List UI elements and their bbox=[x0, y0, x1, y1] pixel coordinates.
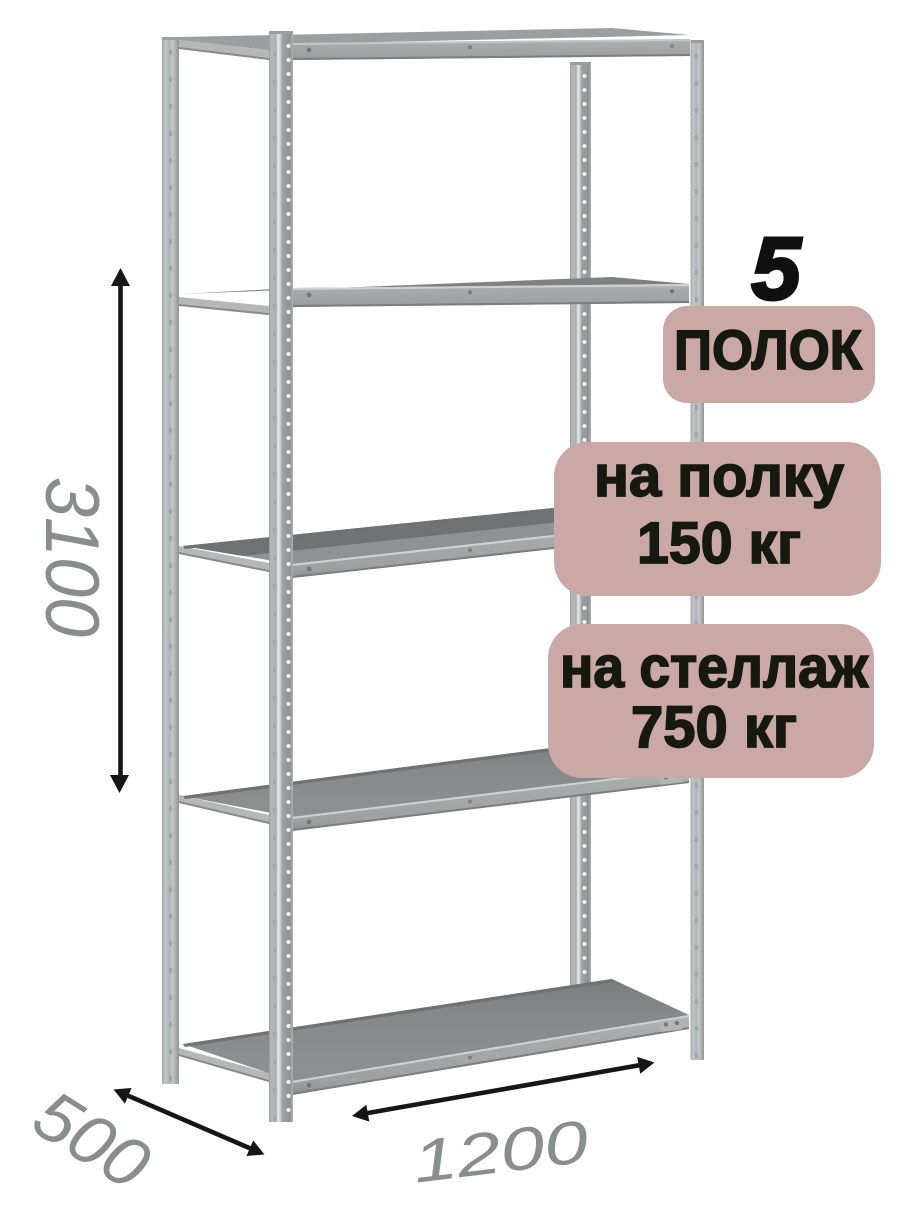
svg-text:ПОЛОК: ПОЛОК bbox=[674, 318, 863, 381]
svg-text:на полку: на полку bbox=[594, 444, 844, 509]
svg-text:на стеллаж: на стеллаж bbox=[560, 635, 869, 700]
svg-text:5: 5 bbox=[751, 218, 802, 318]
svg-text:150 кг: 150 кг bbox=[637, 511, 801, 576]
svg-text:3100: 3100 bbox=[29, 477, 114, 637]
svg-text:750 кг: 750 кг bbox=[631, 695, 797, 760]
